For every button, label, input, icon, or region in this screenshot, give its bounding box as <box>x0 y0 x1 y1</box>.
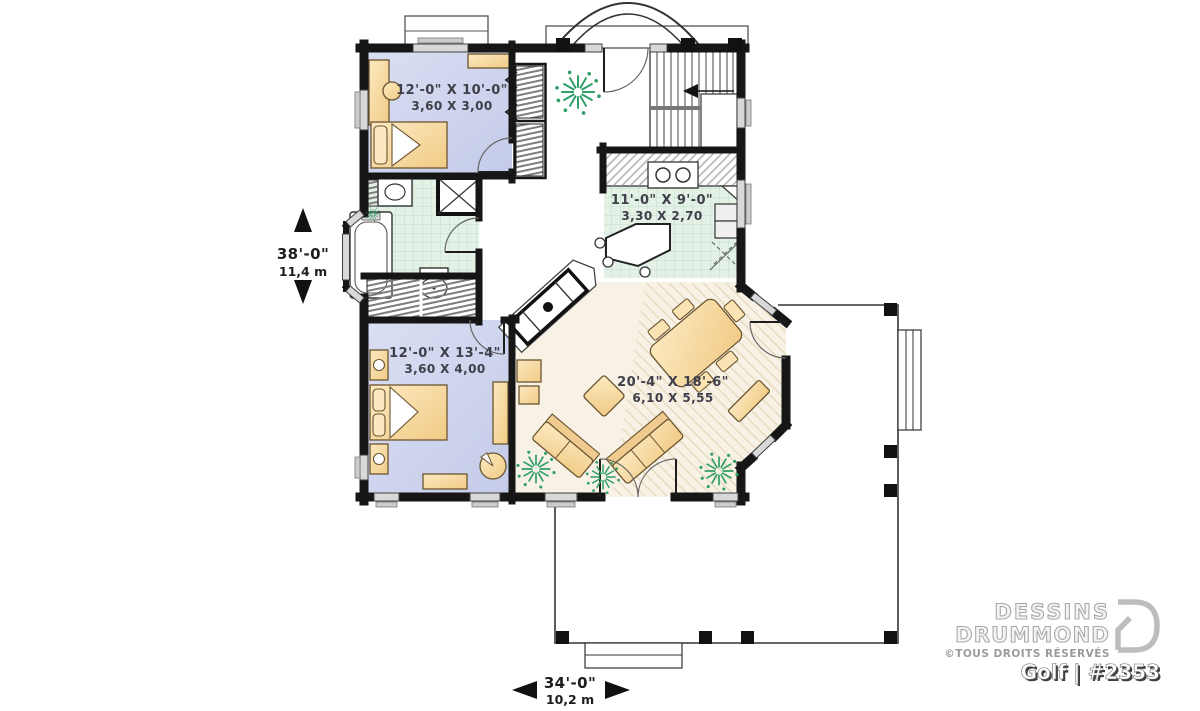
stair-window <box>737 98 745 128</box>
rights-notice: ©TOUS DROITS RÉSERVÉS <box>944 647 1110 660</box>
kitchen-label-metric: 3,30 X 2,70 <box>621 209 702 223</box>
staircase <box>650 50 739 148</box>
armoire <box>493 382 508 444</box>
drummond-logo-mark <box>1118 602 1157 650</box>
width-metric: 10,2 m <box>546 692 594 707</box>
bottom-window-3 <box>545 493 577 501</box>
nightstand-bottom <box>370 444 388 474</box>
vanity-sink <box>366 178 412 206</box>
dim-arrow-left <box>512 681 537 699</box>
brand-name-line2: DRUMMOND <box>955 623 1110 647</box>
bottom-window-4 <box>713 493 738 501</box>
veranda-steps-bottom <box>585 643 682 668</box>
veranda-steps-right <box>898 330 921 430</box>
depth-metric: 11,4 m <box>279 264 327 279</box>
stair-well <box>701 94 737 148</box>
dim-arrow-up <box>294 208 312 232</box>
dim-arrow-right <box>605 681 630 699</box>
bath-bay-window-2 <box>343 234 350 280</box>
bedroom-top-window <box>413 44 468 52</box>
bedroom-top-label-imperial: 12'-0" X 10'-0" <box>396 83 508 98</box>
drummond-logo: DESSINS DRUMMOND ©TOUS DROITS RÉSERVÉS G… <box>944 600 1162 686</box>
cooktop <box>648 162 698 188</box>
front-door <box>604 48 648 92</box>
bedroom-top-label-metric: 3,60 X 3,00 <box>411 99 492 113</box>
bottom-window-2 <box>470 493 500 501</box>
tv-cabinet <box>517 360 541 404</box>
plant-entry <box>555 71 601 115</box>
plan-model-number: Golf | #2353 <box>1021 660 1160 684</box>
living-label-imperial: 20'-4" X 18'-6" <box>617 375 729 390</box>
round-chair <box>480 453 506 479</box>
single-bed <box>371 122 447 168</box>
kitchen-label-imperial: 11'-0" X 9'-0" <box>611 193 713 208</box>
bedroom-bottom-label-metric: 3,60 X 4,00 <box>404 362 485 376</box>
bedroom-bottom-label-imperial: 12'-0" X 13'-4" <box>389 346 501 361</box>
shower-linen-unit <box>438 178 480 214</box>
width-dimension: 34'-0" 10,2 m <box>512 674 630 707</box>
kitchen-window <box>737 180 745 228</box>
bedroom-bottom-side-window <box>360 455 368 480</box>
depth-dimension: 38'-0" 11,4 m <box>277 208 329 304</box>
dresser <box>423 474 467 489</box>
floor-plan-page: 12'-0" X 10'-0" 3,60 X 3,00 11'-0" X 9'-… <box>0 0 1200 711</box>
shelf <box>468 54 510 68</box>
floor-plan-canvas: 12'-0" X 10'-0" 3,60 X 3,00 11'-0" X 9'-… <box>0 0 1200 711</box>
brand-name-line1: DESSINS <box>994 600 1110 624</box>
nightstand-top <box>370 350 388 380</box>
dim-arrow-down <box>294 280 312 304</box>
entry-sidelight-left <box>585 44 602 52</box>
living-label-metric: 6,10 X 5,55 <box>632 391 713 405</box>
bedroom-bottom-closet <box>367 279 477 317</box>
width-imperial: 34'-0" <box>544 674 596 692</box>
refrigerator <box>715 204 737 238</box>
entry-sidelight-right <box>650 44 667 52</box>
double-bed <box>370 385 447 440</box>
bottom-window-1 <box>374 493 399 501</box>
bedroom-top-side-window <box>360 90 368 130</box>
depth-imperial: 38'-0" <box>277 245 329 263</box>
